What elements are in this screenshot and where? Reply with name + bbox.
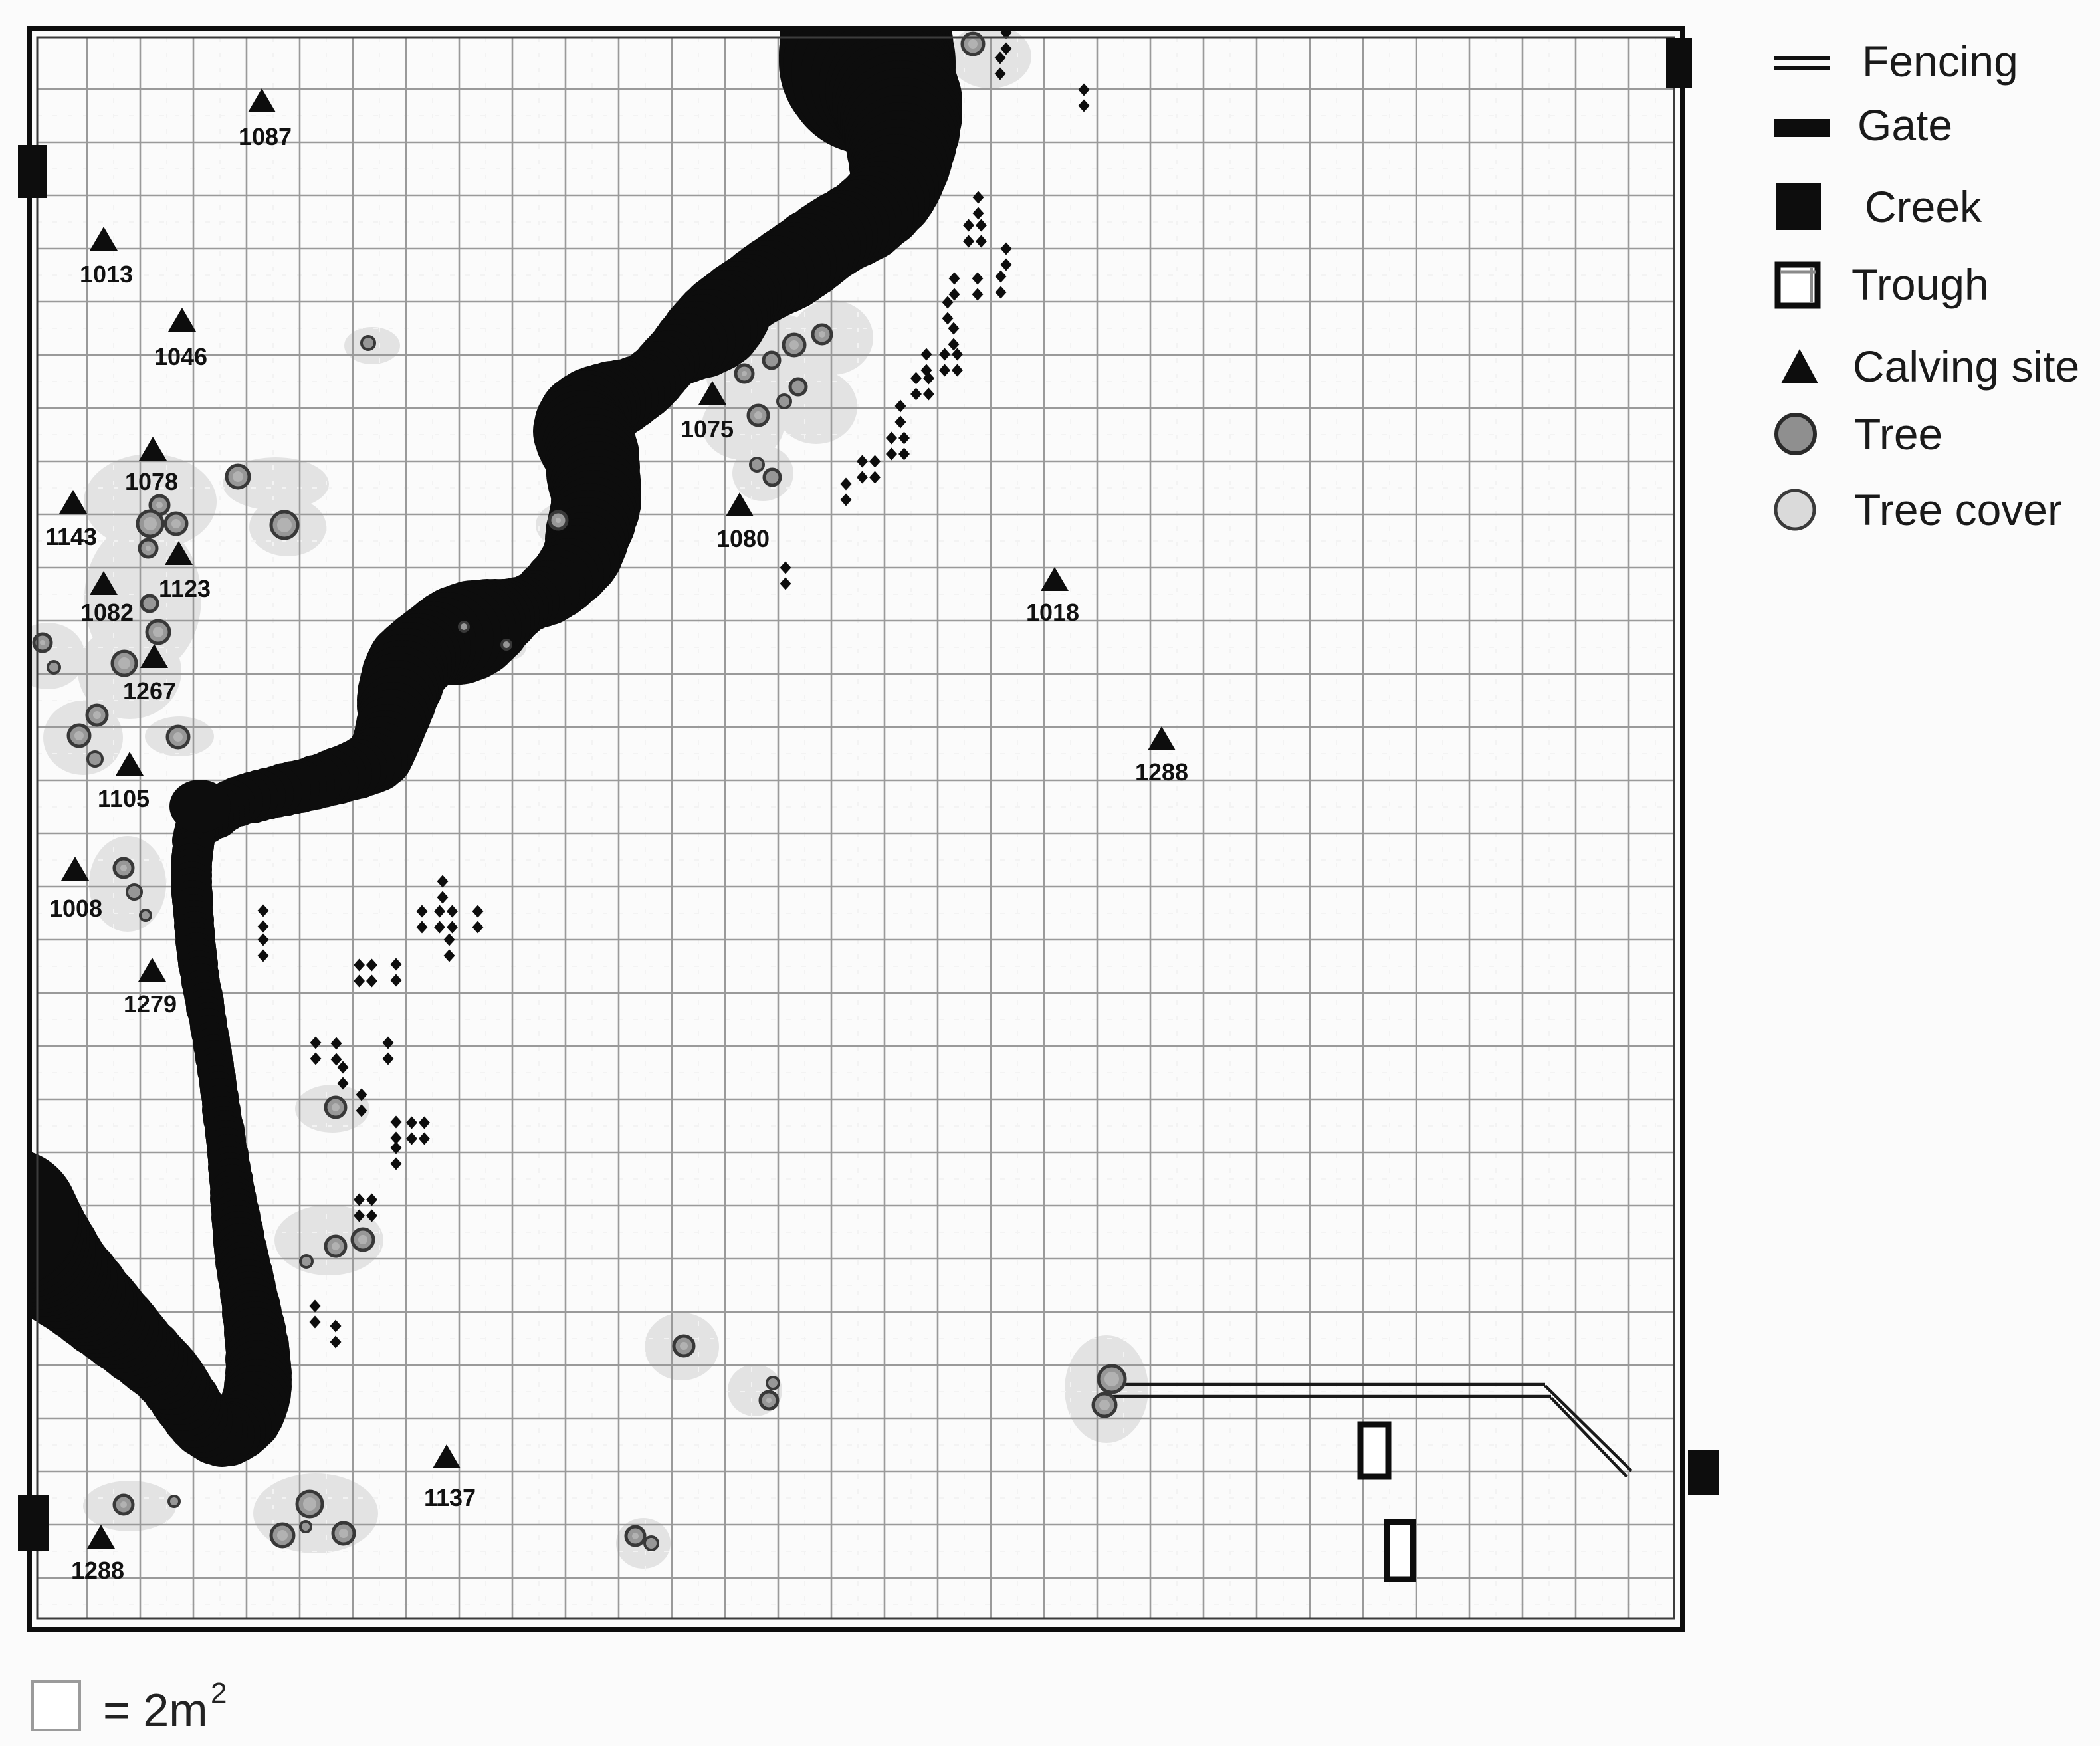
svg-text:1279: 1279 [124, 990, 177, 1018]
svg-text:1087: 1087 [239, 123, 292, 150]
svg-text:= 2m: = 2m [103, 1684, 208, 1736]
svg-text:Calving site: Calving site [1853, 342, 2079, 391]
svg-text:Tree: Tree [1854, 409, 1942, 459]
svg-text:1288: 1288 [71, 1557, 124, 1584]
svg-text:1018: 1018 [1026, 599, 1079, 626]
svg-text:Fencing: Fencing [1862, 37, 2018, 86]
svg-text:Trough: Trough [1851, 260, 1989, 309]
svg-text:1080: 1080 [716, 525, 770, 552]
svg-text:1075: 1075 [681, 415, 734, 443]
svg-text:1123: 1123 [159, 575, 211, 602]
svg-text:1046: 1046 [154, 343, 207, 370]
svg-text:2: 2 [211, 1677, 227, 1709]
svg-text:1082: 1082 [80, 599, 134, 626]
svg-text:1288: 1288 [1135, 758, 1188, 786]
svg-text:Creek: Creek [1865, 182, 1982, 231]
svg-text:1137: 1137 [424, 1484, 476, 1511]
svg-text:1078: 1078 [125, 468, 178, 495]
svg-text:1105: 1105 [98, 785, 150, 812]
svg-text:1008: 1008 [49, 895, 102, 922]
svg-text:Tree cover: Tree cover [1854, 485, 2062, 534]
svg-text:1143: 1143 [45, 523, 97, 550]
svg-text:1267: 1267 [123, 677, 176, 705]
svg-text:1013: 1013 [80, 261, 133, 288]
svg-text:Gate: Gate [1857, 100, 1952, 150]
